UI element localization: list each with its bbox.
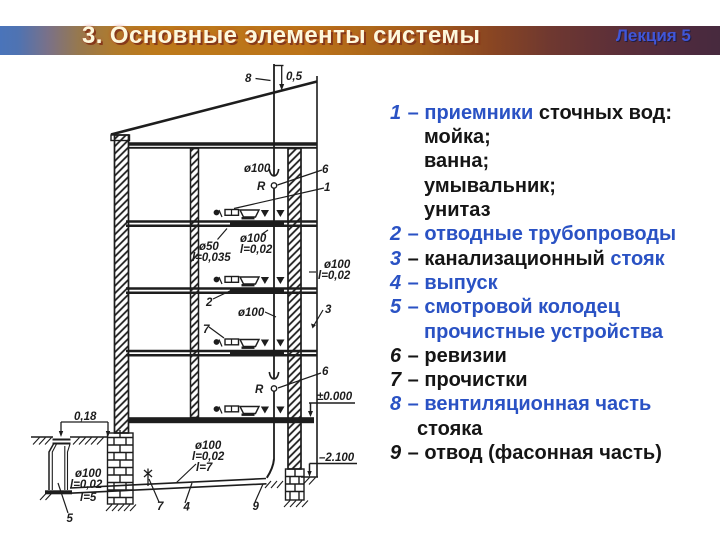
svg-text:9: 9	[253, 501, 260, 513]
svg-text:6: 6	[322, 366, 329, 378]
svg-text:1: 1	[324, 182, 330, 194]
svg-text:l=0,02: l=0,02	[240, 244, 273, 256]
svg-text:±0.000: ±0.000	[317, 391, 353, 403]
svg-text:7: 7	[203, 324, 210, 336]
svg-text:l=5: l=5	[80, 492, 97, 504]
svg-text:7: 7	[157, 501, 164, 513]
svg-text:ø100: ø100	[238, 307, 265, 319]
svg-text:l=0,02: l=0,02	[318, 270, 351, 282]
svg-text:5: 5	[67, 513, 74, 525]
svg-text:l=0,02: l=0,02	[70, 479, 103, 491]
svg-text:l=7: l=7	[196, 462, 213, 474]
svg-text:l=0,035: l=0,035	[192, 252, 231, 264]
svg-text:8: 8	[245, 73, 252, 85]
svg-text:–2.100: –2.100	[319, 452, 355, 464]
svg-text:0,5: 0,5	[286, 71, 303, 83]
svg-text:6: 6	[322, 164, 329, 176]
svg-text:R: R	[255, 384, 264, 396]
svg-text:0,18: 0,18	[74, 411, 97, 423]
svg-text:R: R	[257, 181, 266, 193]
svg-text:4: 4	[183, 502, 191, 514]
svg-text:3: 3	[325, 304, 332, 316]
svg-text:ø100: ø100	[244, 163, 271, 175]
svg-text:2: 2	[205, 297, 213, 309]
